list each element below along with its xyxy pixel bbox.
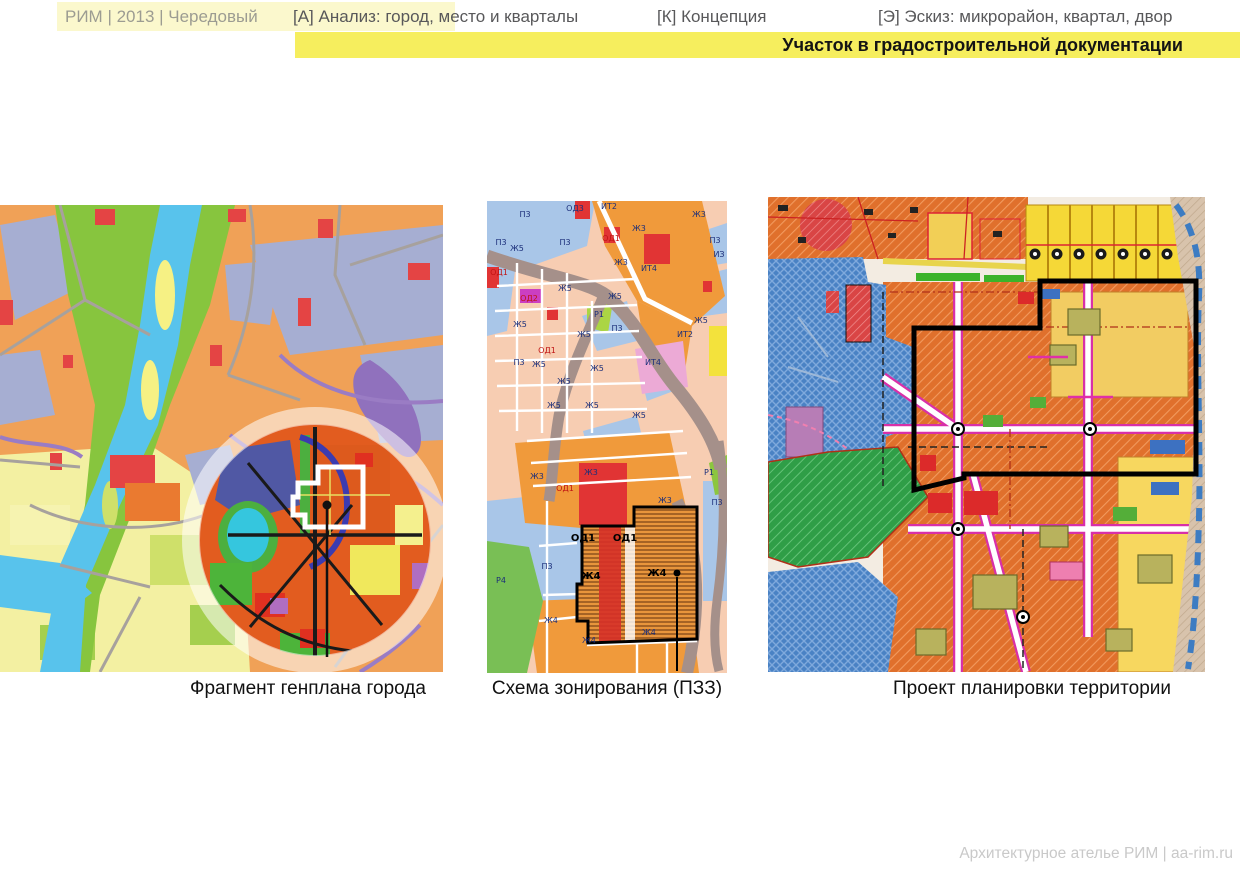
zone-label: Ж5 <box>632 411 646 420</box>
zone-label: Ж4 <box>581 571 600 582</box>
zone-label: Ж3 <box>614 258 628 267</box>
zone-label: Ж5 <box>585 401 599 410</box>
slide-subtitle: Участок в градостроительной документации <box>782 33 1183 58</box>
caption-zoning: Схема зонирования (ПЗЗ) <box>470 676 744 702</box>
zone-label: ОД1 <box>556 484 574 493</box>
zone-label: ОД1 <box>490 268 508 277</box>
zone-label: ИЗ <box>713 250 724 259</box>
zone-label: П3 <box>519 210 530 219</box>
zone-label: Ж4 <box>642 628 656 637</box>
planning-drawing <box>768 197 1205 672</box>
zone-label: П3 <box>611 324 622 333</box>
map-zoning: П3ОД3ИТ2Ж3П3Ж5П3ОД1Ж3Ж3ОД1ИЗП3Ж5ИТ4Ж5ОД2… <box>487 201 727 673</box>
zone-label: Ж3 <box>584 468 598 477</box>
caption-planning: Проект планировки территории <box>860 676 1204 702</box>
breadcrumb: РИМ | 2013 | Чередовый <box>65 2 258 31</box>
zone-label: П3 <box>709 236 720 245</box>
genplan-orange-district <box>125 483 180 521</box>
zone-label: Ж5 <box>510 244 524 253</box>
zone-label: Ж4 <box>544 616 558 625</box>
zone-label: Ж5 <box>547 401 561 410</box>
tab-sketch[interactable]: [Э] Эскиз: микрорайон, квартал, двор <box>878 2 1172 31</box>
zone-label: П3 <box>559 238 570 247</box>
zone-label: Ж5 <box>557 377 571 386</box>
site-marker-zoning <box>674 570 681 577</box>
zone-label: ОД1 <box>613 533 637 544</box>
zone-label: ИТ4 <box>645 358 661 367</box>
zone-label: Ж5 <box>532 360 546 369</box>
zone-label: ОД1 <box>571 533 595 544</box>
map-planning-project <box>768 197 1205 672</box>
genplan-focus-circle <box>191 416 439 664</box>
zone-label: ИТ2 <box>601 202 617 211</box>
zone-label: Ж5 <box>513 320 527 329</box>
zone-label: Ж4 <box>647 568 666 579</box>
planning-yellow-strips <box>1026 205 1188 281</box>
zone-label: Ж3 <box>632 224 646 233</box>
zone-label: Р1 <box>704 468 714 477</box>
zone-label: П3 <box>495 238 506 247</box>
zone-label: П3 <box>513 358 524 367</box>
zone-label: Ж3 <box>692 210 706 219</box>
zoning-drawing: П3ОД3ИТ2Ж3П3Ж5П3ОД1Ж3Ж3ОД1ИЗП3Ж5ИТ4Ж5ОД2… <box>487 201 727 673</box>
caption-genplan: Фрагмент генплана города <box>150 676 466 702</box>
zone-label: Ж4 <box>582 636 596 645</box>
zone-label: Ж5 <box>558 284 572 293</box>
zone-label: Р1 <box>594 310 604 319</box>
slide: РИМ | 2013 | Чередовый [А] Анализ: город… <box>0 0 1240 874</box>
zone-label: ОД2 <box>520 294 538 303</box>
zone-label: Ж5 <box>590 364 604 373</box>
zone-label: ИТ4 <box>641 264 657 273</box>
zone-label: Ж3 <box>530 472 544 481</box>
zone-label: ОД1 <box>538 346 556 355</box>
zone-label: ИТ2 <box>677 330 693 339</box>
zone-label: ОД3 <box>566 204 584 213</box>
zone-label: Ж5 <box>577 330 591 339</box>
zone-label: П3 <box>541 562 552 571</box>
zone-label: Ж3 <box>658 496 672 505</box>
zone-label: Ж5 <box>694 316 708 325</box>
tab-concept[interactable]: [К] Концепция <box>657 2 766 31</box>
zone-label: П3 <box>711 498 722 507</box>
zone-label: Ж5 <box>608 292 622 301</box>
footer-credit: Архитектурное ателье РИМ | aa-rim.ru <box>959 845 1233 863</box>
genplan-drawing <box>0 205 443 672</box>
map-genplan <box>0 205 443 672</box>
zone-label: ОД1 <box>602 234 620 243</box>
zone-label: Р4 <box>496 576 506 585</box>
tab-analysis[interactable]: [А] Анализ: город, место и кварталы <box>293 2 578 31</box>
